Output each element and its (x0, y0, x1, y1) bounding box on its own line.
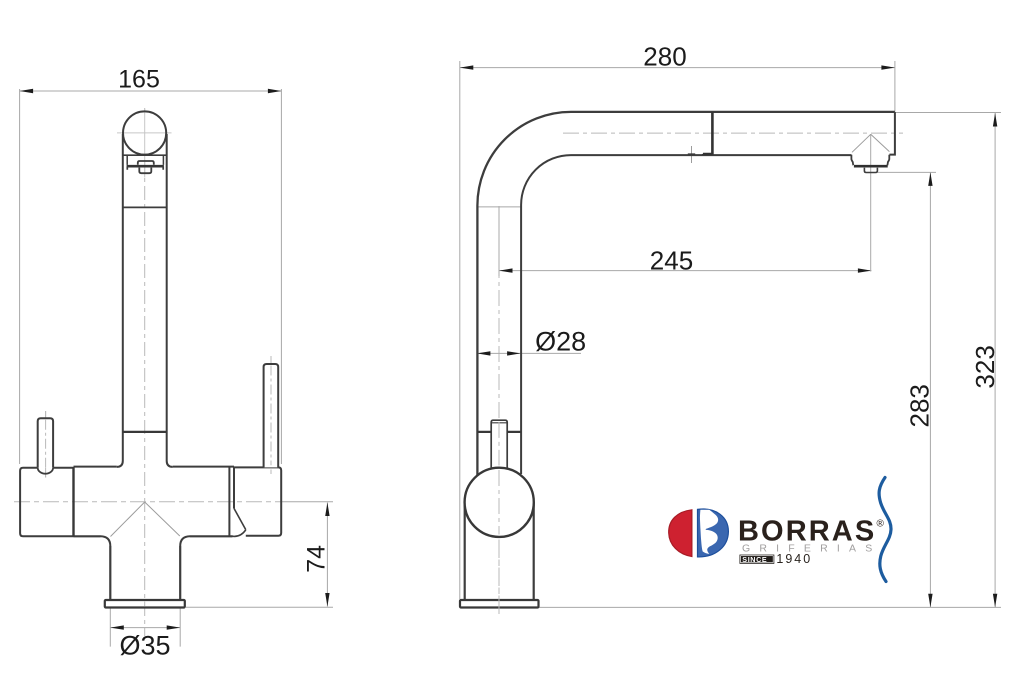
svg-text:74: 74 (303, 545, 331, 573)
svg-text:®: ® (877, 519, 885, 530)
svg-text:323: 323 (970, 345, 1000, 388)
svg-text:1940: 1940 (776, 552, 812, 566)
svg-text:165: 165 (118, 66, 160, 94)
svg-text:283: 283 (904, 384, 934, 427)
svg-text:245: 245 (650, 245, 693, 275)
svg-text:280: 280 (643, 42, 686, 72)
svg-text:SINCE: SINCE (742, 555, 767, 564)
svg-text:Ø35: Ø35 (119, 630, 170, 660)
svg-text:Ø28: Ø28 (535, 326, 586, 356)
